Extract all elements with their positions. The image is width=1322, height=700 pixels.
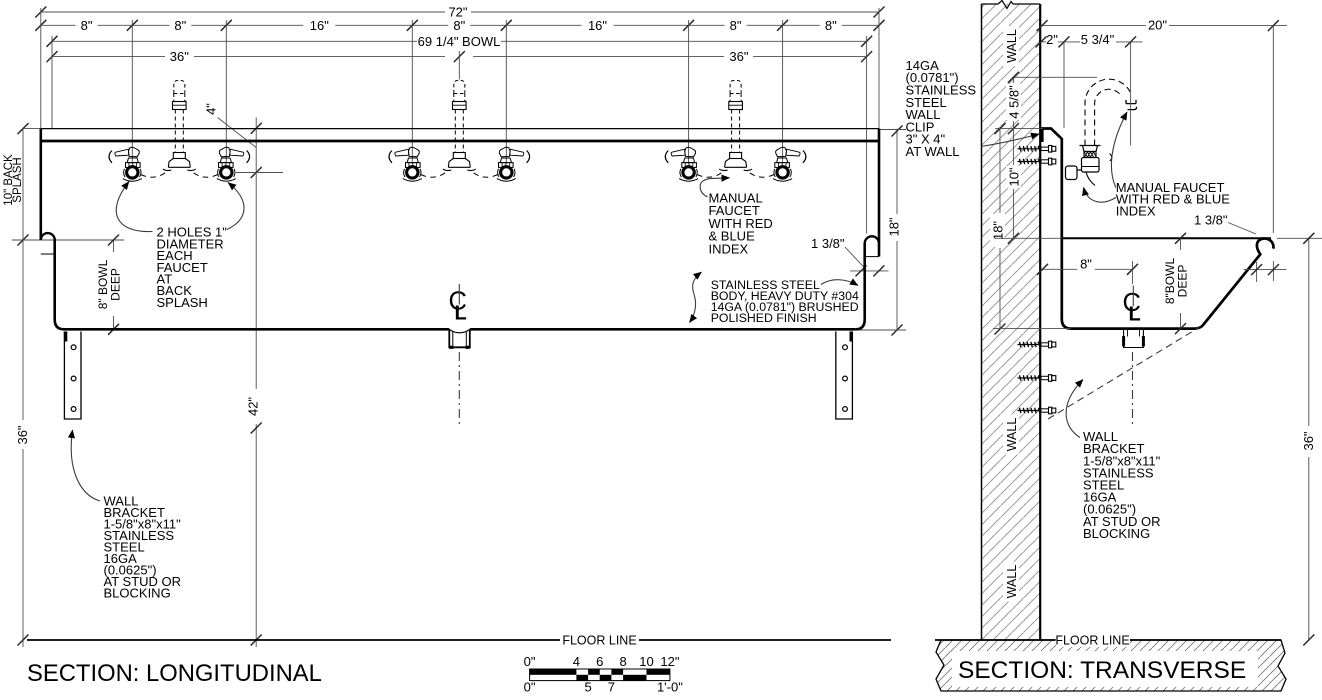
svg-text:16": 16" [588, 18, 607, 33]
svg-text:10": 10" [1007, 167, 1022, 186]
svg-text:L: L [455, 303, 467, 325]
svg-text:WALL: WALL [1005, 565, 1019, 599]
svg-text:1'-0": 1'-0" [657, 680, 683, 695]
svg-text:POLISHED FINISH: POLISHED FINISH [711, 311, 817, 325]
svg-text:INDEX: INDEX [709, 241, 749, 256]
svg-text:0": 0" [524, 680, 536, 695]
svg-text:DEEP: DEEP [109, 268, 123, 301]
svg-text:36": 36" [729, 49, 748, 64]
svg-text:4": 4" [204, 103, 219, 115]
svg-text:0": 0" [524, 654, 536, 669]
svg-text:BLOCKING: BLOCKING [1083, 526, 1150, 541]
svg-text:36": 36" [1301, 431, 1316, 450]
svg-text:10: 10 [639, 654, 653, 669]
svg-text:18": 18" [887, 217, 902, 236]
svg-text:8": 8" [174, 18, 186, 33]
svg-text:2": 2" [1046, 32, 1058, 47]
svg-text:WALL: WALL [1005, 29, 1019, 63]
svg-text:36": 36" [15, 425, 30, 444]
svg-text:8": 8" [1080, 257, 1092, 272]
svg-text:36": 36" [170, 49, 189, 64]
svg-text:SPLASH: SPLASH [12, 157, 24, 202]
svg-text:5 3/4": 5 3/4" [1081, 32, 1115, 47]
svg-text:FLOOR LINE: FLOOR LINE [562, 633, 636, 647]
svg-text:69 1/4" BOWL: 69 1/4" BOWL [418, 34, 501, 49]
svg-text:DEEP: DEEP [1176, 265, 1190, 298]
svg-text:4 5/8": 4 5/8" [1007, 85, 1022, 119]
svg-text:7: 7 [608, 680, 615, 695]
svg-text:8": 8" [825, 18, 837, 33]
svg-text:8: 8 [619, 654, 626, 669]
svg-text:FLOOR LINE: FLOOR LINE [1055, 633, 1129, 647]
svg-text:SECTION: LONGITUDINAL: SECTION: LONGITUDINAL [27, 660, 322, 687]
svg-text:5: 5 [584, 680, 591, 695]
svg-text:INDEX: INDEX [1116, 203, 1156, 218]
svg-text:8": 8" [730, 18, 742, 33]
svg-text:SECTION: TRANSVERSE: SECTION: TRANSVERSE [958, 657, 1246, 684]
svg-text:L: L [1129, 304, 1141, 326]
svg-text:WALL: WALL [1005, 418, 1019, 452]
svg-text:4: 4 [573, 654, 580, 669]
svg-text:BLOCKING: BLOCKING [104, 585, 171, 600]
svg-text:8": 8" [81, 18, 93, 33]
svg-text:AT WALL: AT WALL [906, 144, 960, 159]
svg-text:18": 18" [991, 221, 1006, 240]
svg-text:42": 42" [246, 397, 261, 416]
svg-text:SPLASH: SPLASH [157, 295, 208, 310]
svg-text:20": 20" [1148, 18, 1167, 33]
svg-text:1 3/8": 1 3/8" [811, 236, 845, 251]
svg-text:6: 6 [596, 654, 603, 669]
svg-text:16": 16" [310, 18, 329, 33]
svg-text:1 3/8": 1 3/8" [1194, 213, 1228, 228]
svg-text:8": 8" [453, 18, 465, 33]
svg-text:12": 12" [660, 654, 679, 669]
